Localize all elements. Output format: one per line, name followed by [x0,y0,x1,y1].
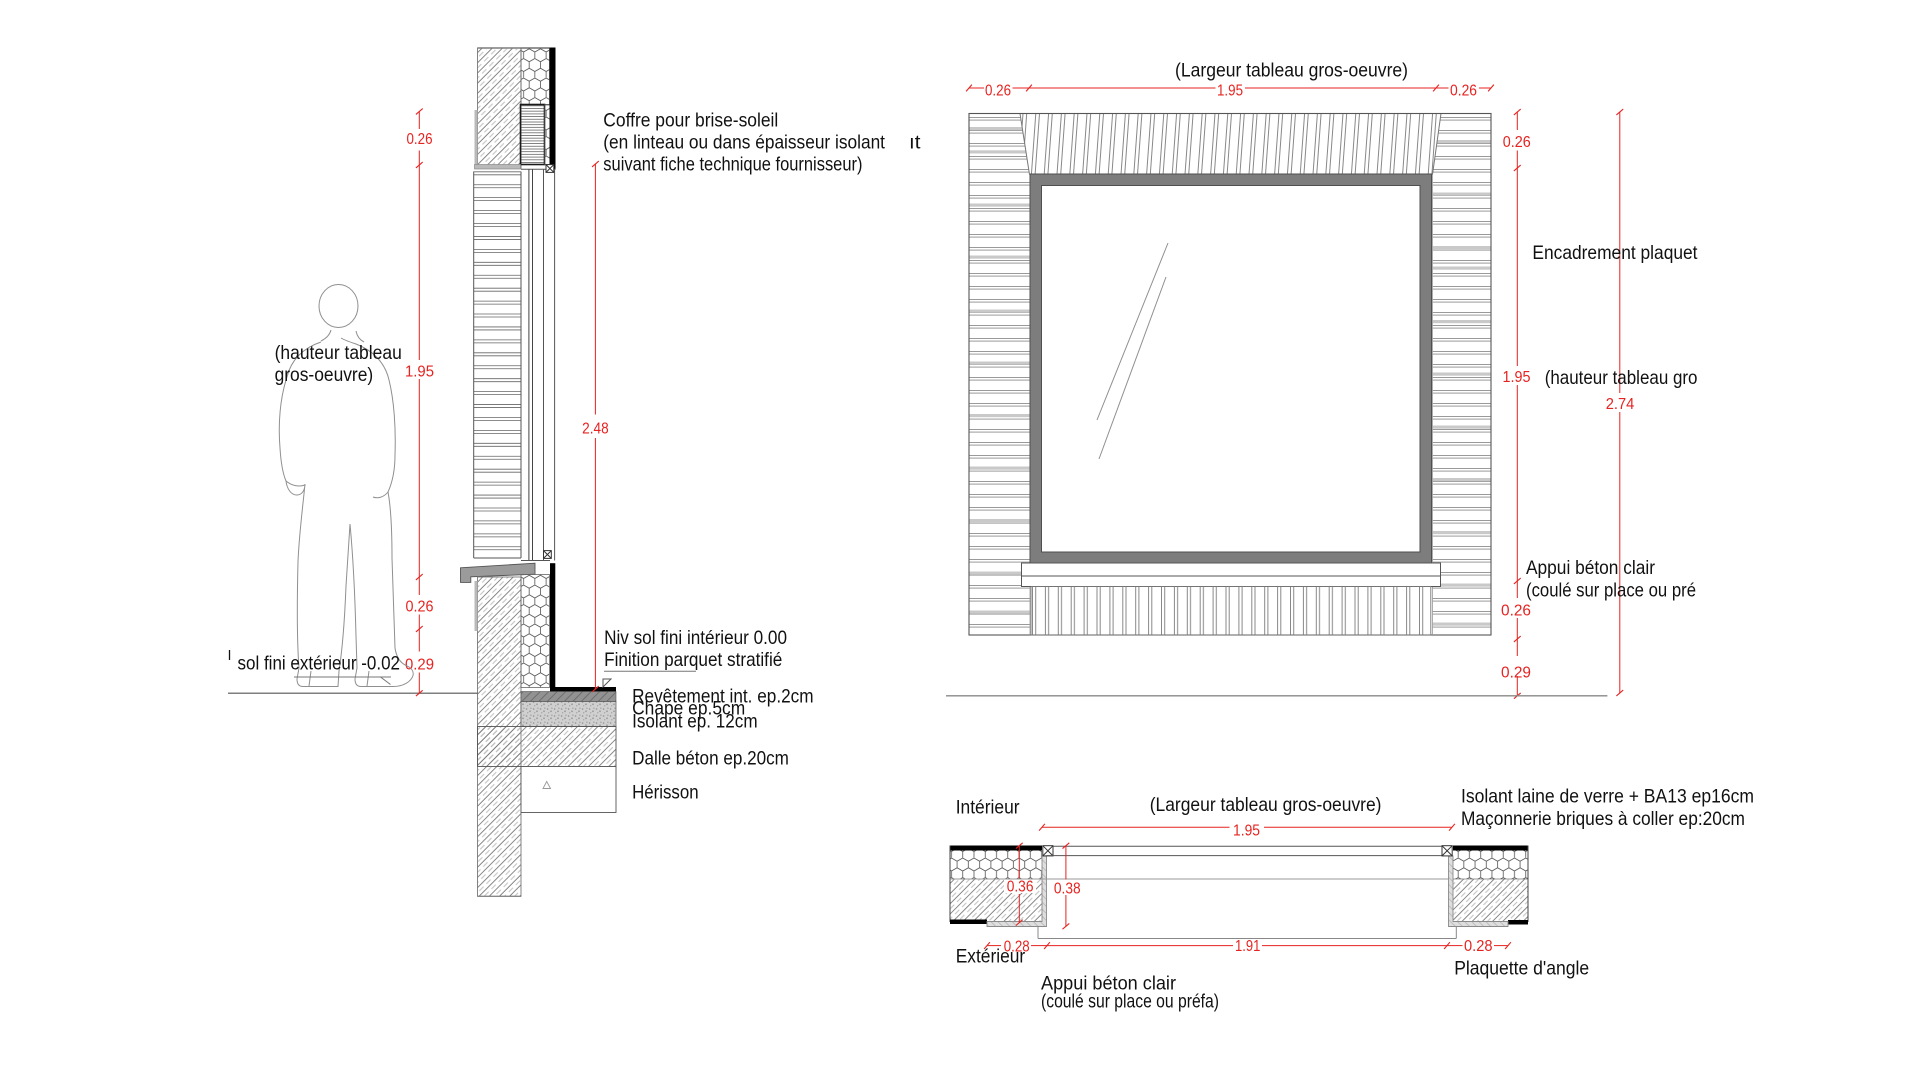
svg-text:(Largeur tableau gros-oeuvre): (Largeur tableau gros-oeuvre) [1150,794,1382,816]
svg-text:Isolant laine de verre + BA13: Isolant laine de verre + BA13 ep16cm [1461,786,1754,808]
svg-text:Isolant ep. 12cm: Isolant ep. 12cm [632,711,758,733]
svg-text:gros-oeuvre): gros-oeuvre) [275,364,374,386]
svg-text:0.38: 0.38 [1054,881,1081,898]
svg-text:2.74: 2.74 [1606,396,1635,413]
svg-text:0.36: 0.36 [1007,879,1034,896]
svg-text:Extérieur: Extérieur [956,946,1026,968]
svg-text:(hauteur tableau gro: (hauteur tableau gro [1545,367,1698,389]
svg-text:0.26: 0.26 [985,83,1011,100]
svg-text:sol fini extérieur -0.02: sol fini extérieur -0.02 [238,653,401,675]
svg-text:Plaquette d'angle: Plaquette d'angle [1454,958,1589,980]
svg-text:Finition parquet stratifié: Finition parquet stratifié [604,649,782,671]
svg-text:0.26: 0.26 [1503,134,1531,151]
svg-text:0.29: 0.29 [1501,665,1531,682]
svg-text:Appui béton clair: Appui béton clair [1526,557,1655,579]
svg-text:0.26: 0.26 [1501,603,1531,620]
svg-text:(coulé sur place ou pré: (coulé sur place ou pré [1526,580,1696,602]
svg-text:(coulé sur place ou préfa): (coulé sur place ou préfa) [1041,991,1219,1013]
svg-text:suivant fiche technique fourni: suivant fiche technique fournisseur) [603,154,862,176]
svg-text:Dalle béton ep.20cm: Dalle béton ep.20cm [632,748,789,770]
svg-text:Intérieur: Intérieur [956,797,1020,819]
svg-text:2.48: 2.48 [582,420,609,437]
svg-text:ıt: ıt [909,132,921,154]
svg-text:(Largeur tableau gros-oeuvre): (Largeur tableau gros-oeuvre) [1175,60,1408,82]
svg-text:0.26: 0.26 [407,131,433,148]
svg-text:Hérisson: Hérisson [632,782,699,804]
svg-text:0.28: 0.28 [1464,938,1493,955]
svg-text:0.29: 0.29 [405,657,434,674]
svg-text:1.95: 1.95 [405,364,434,381]
svg-text:0.26: 0.26 [406,599,434,616]
svg-text:1.91: 1.91 [1235,938,1260,955]
svg-text:0.26: 0.26 [1450,83,1477,100]
svg-text:1.95: 1.95 [1233,822,1260,839]
svg-text:(hauteur tableau: (hauteur tableau [275,342,402,364]
svg-text:Coffre pour brise-soleil: Coffre pour brise-soleil [603,110,778,132]
svg-text:Encadrement plaquet: Encadrement plaquet [1532,242,1698,264]
svg-text:1.95: 1.95 [1503,369,1531,386]
svg-text:Niv sol fini intérieur 0.00: Niv sol fini intérieur 0.00 [604,627,787,649]
svg-text:1.95: 1.95 [1217,83,1243,100]
svg-text:(en linteau ou dans épaisseur: (en linteau ou dans épaisseur isolant [603,132,885,154]
svg-text:Maçonnerie briques à coller ep: Maçonnerie briques à coller ep:20cm [1461,808,1745,830]
